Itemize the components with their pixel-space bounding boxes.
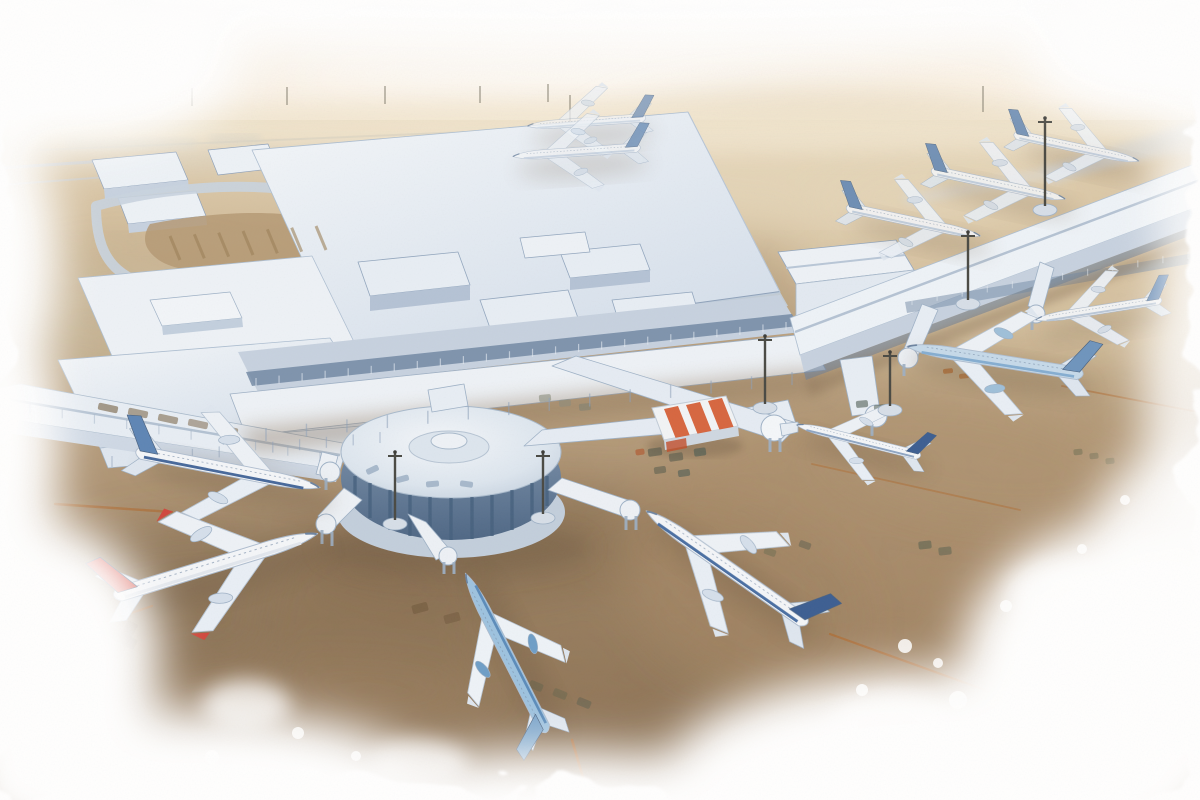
paper-grain: [0, 0, 1200, 800]
watercolor-airport-illustration: [0, 0, 1200, 800]
illustration-canvas: [0, 0, 1200, 800]
